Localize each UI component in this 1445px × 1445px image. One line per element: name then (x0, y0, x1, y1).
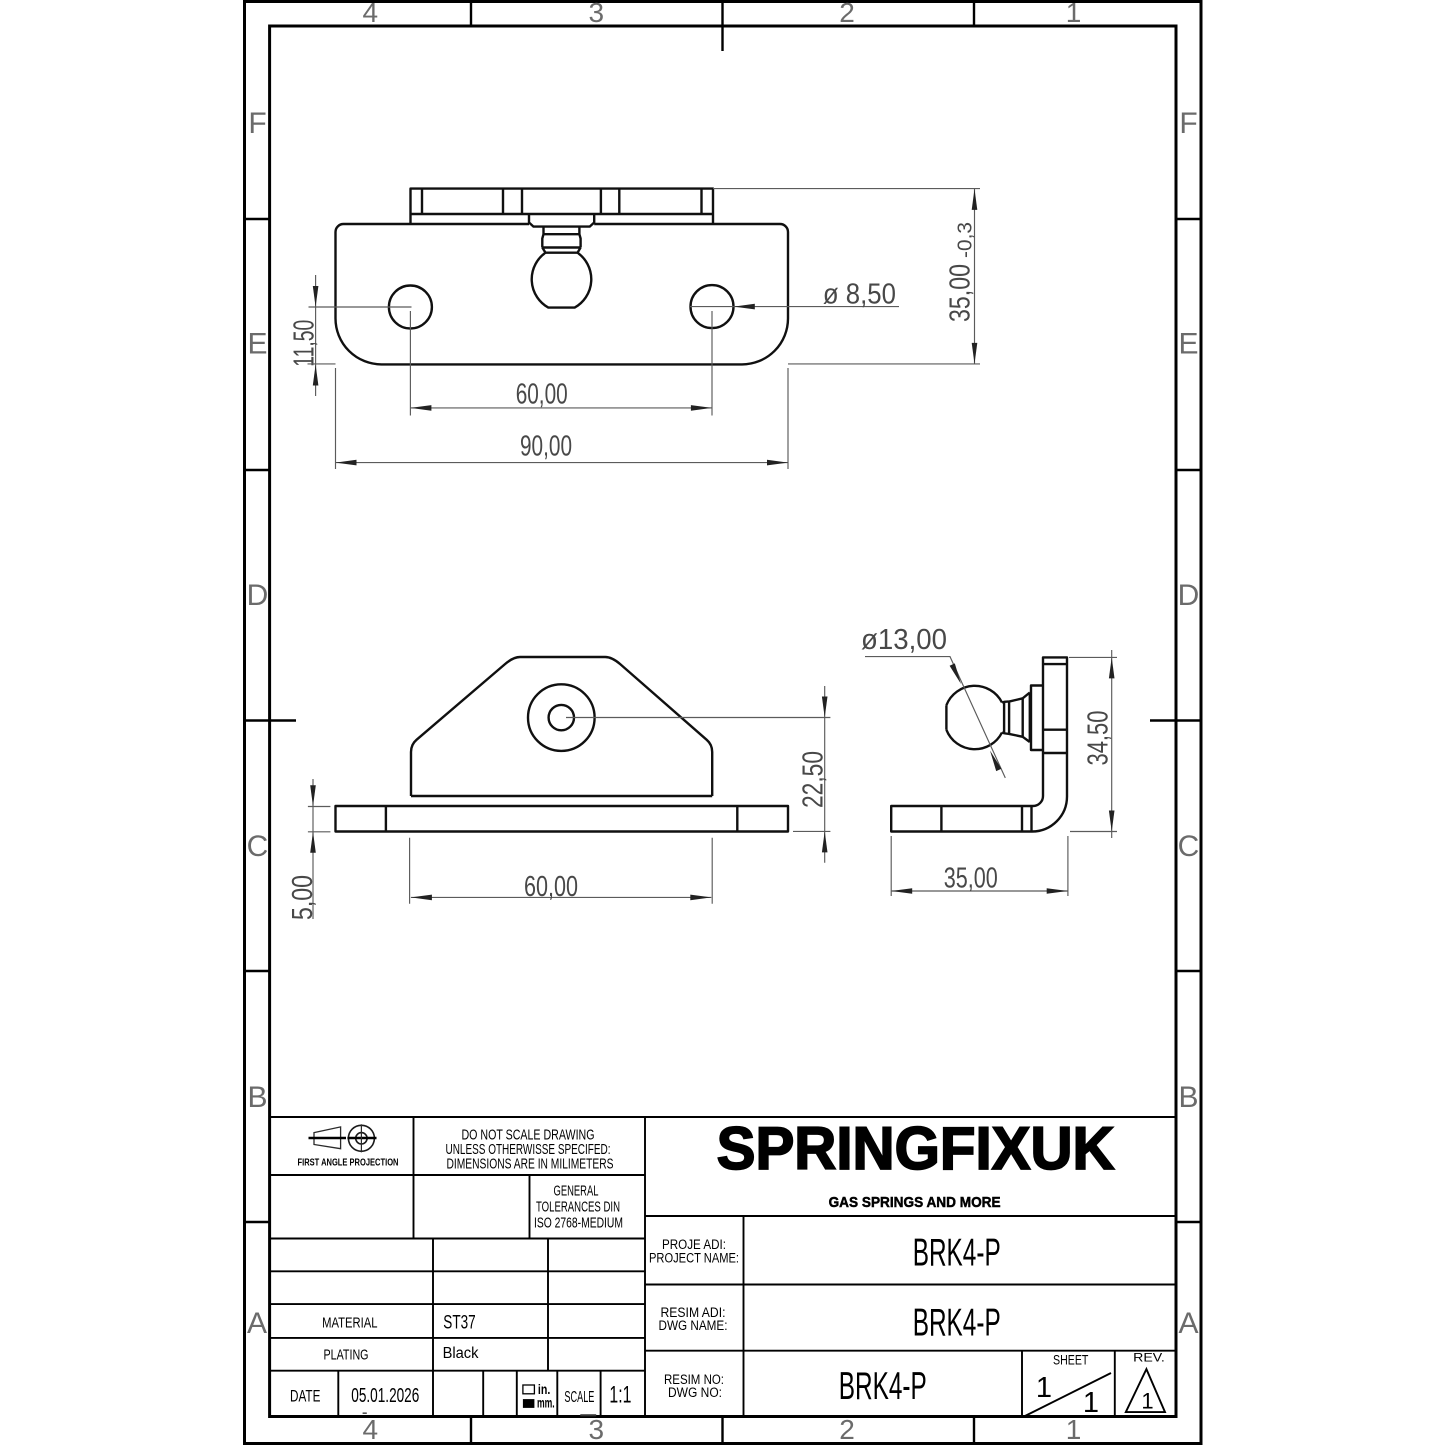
svg-text:ST37: ST37 (443, 1311, 475, 1333)
svg-text:ISO 2768-MEDIUM: ISO 2768-MEDIUM (534, 1215, 623, 1232)
svg-text:1: 1 (1036, 1372, 1052, 1404)
svg-text:ø 8,50: ø 8,50 (823, 278, 896, 310)
svg-text:FIRST ANGLE PROJECTION: FIRST ANGLE PROJECTION (298, 1158, 399, 1169)
svg-text:F: F (248, 107, 266, 140)
svg-text:DIMENSIONS ARE IN MILIMETERS: DIMENSIONS ARE IN MILIMETERS (447, 1156, 614, 1173)
svg-text:F: F (1179, 107, 1197, 140)
svg-text:PROJECT NAME:: PROJECT NAME: (649, 1250, 739, 1265)
svg-text:1: 1 (1066, 0, 1082, 28)
svg-text:C: C (247, 830, 269, 863)
svg-text:4: 4 (363, 0, 379, 28)
svg-text:60,00: 60,00 (516, 379, 568, 411)
svg-text:SCALE: SCALE (564, 1389, 594, 1406)
svg-text:REV.: REV. (1133, 1351, 1165, 1365)
svg-text:22,50: 22,50 (798, 751, 830, 808)
svg-text:2: 2 (839, 0, 855, 28)
svg-text:05.01.2026: 05.01.2026 (351, 1384, 419, 1407)
svg-text:B: B (247, 1081, 267, 1114)
svg-text:11,50: 11,50 (288, 320, 320, 367)
svg-text:GAS SPRINGS AND MORE: GAS SPRINGS AND MORE (829, 1194, 1001, 1211)
svg-text:35,00: 35,00 (945, 264, 977, 322)
svg-text:BRK4-P: BRK4-P (913, 1232, 1001, 1275)
svg-text:DWG NO:: DWG NO: (668, 1385, 722, 1400)
svg-text:-0,3: -0,3 (955, 222, 977, 258)
svg-text:D: D (247, 579, 269, 612)
svg-text:E: E (1178, 328, 1198, 361)
svg-text:2: 2 (839, 1414, 855, 1445)
svg-text:B: B (1178, 1081, 1198, 1114)
svg-text:1: 1 (1083, 1387, 1099, 1419)
svg-text:ø13,00: ø13,00 (861, 624, 947, 656)
svg-text:1:1: 1:1 (609, 1381, 631, 1408)
svg-text:34,50: 34,50 (1083, 711, 1115, 766)
svg-text:D: D (1178, 579, 1200, 612)
svg-text:DATE: DATE (290, 1388, 320, 1406)
svg-text:BRK4-P: BRK4-P (839, 1365, 927, 1408)
svg-text:mm.: mm. (537, 1395, 555, 1410)
svg-text:A: A (1178, 1307, 1198, 1340)
svg-text:A: A (247, 1307, 267, 1340)
svg-text:4: 4 (363, 1414, 379, 1445)
svg-text:90,00: 90,00 (520, 431, 572, 463)
svg-text:1: 1 (1141, 1389, 1153, 1414)
svg-text:Black: Black (443, 1345, 479, 1362)
svg-text:GENERAL: GENERAL (554, 1183, 599, 1200)
svg-text:1: 1 (1066, 1414, 1082, 1445)
svg-text:SPRINGFIXUK: SPRINGFIXUK (717, 1115, 1115, 1182)
svg-text:E: E (247, 328, 267, 361)
svg-text:DWG NAME:: DWG NAME: (659, 1318, 728, 1333)
svg-text:MATERIAL: MATERIAL (322, 1315, 377, 1332)
svg-text:3: 3 (589, 1414, 605, 1445)
svg-text:PLATING: PLATING (324, 1347, 369, 1364)
svg-text:3: 3 (589, 0, 605, 28)
svg-text:35,00: 35,00 (944, 862, 998, 894)
svg-text:5,00: 5,00 (287, 875, 319, 920)
svg-text:TOLERANCES DIN: TOLERANCES DIN (536, 1199, 620, 1216)
svg-text:C: C (1178, 830, 1200, 863)
svg-text:SHEET: SHEET (1053, 1352, 1088, 1367)
svg-text:60,00: 60,00 (524, 871, 578, 903)
svg-text:BRK4-P: BRK4-P (913, 1302, 1001, 1345)
